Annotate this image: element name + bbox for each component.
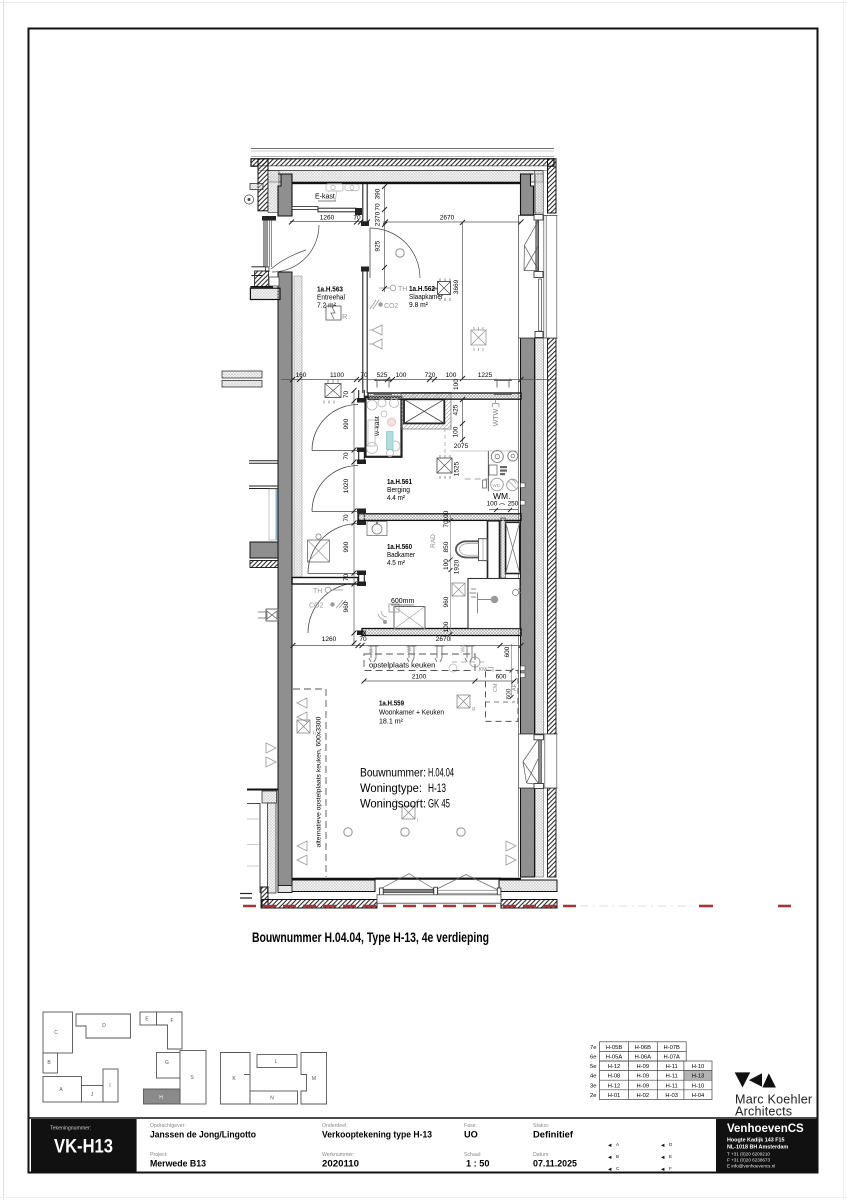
svg-text:M: M: [312, 1076, 316, 1082]
svg-text:R: R: [342, 312, 348, 321]
svg-text:H-06B: H-06B: [635, 1045, 652, 1051]
svg-text:H.04.04: H.04.04: [428, 766, 454, 780]
svg-text:425: 425: [453, 404, 460, 415]
svg-text:H-07A: H-07A: [663, 1055, 680, 1061]
svg-text:Fase:: Fase:: [464, 1123, 477, 1129]
svg-text:i: i: [417, 818, 418, 824]
svg-text:2670: 2670: [436, 636, 451, 643]
svg-text:F: F: [669, 1166, 672, 1171]
svg-text:Opdrachtgever:: Opdrachtgever:: [150, 1123, 186, 1129]
svg-text:E-kast: E-kast: [315, 194, 335, 201]
svg-text:w-kast: w-kast: [374, 416, 381, 437]
svg-text:H-10: H-10: [692, 1064, 705, 1070]
svg-text:100: 100: [396, 372, 407, 379]
svg-text:600mm: 600mm: [391, 598, 415, 605]
svg-text:VW: VW: [407, 647, 413, 655]
svg-text:g: g: [472, 706, 475, 712]
svg-text:H-05B: H-05B: [606, 1045, 623, 1051]
svg-text:Woonkamer + Keuken: Woonkamer + Keuken: [379, 708, 444, 717]
svg-text:3e: 3e: [590, 1083, 596, 1089]
svg-text:6e: 6e: [590, 1055, 596, 1061]
svg-text:Werknummer:: Werknummer:: [322, 1152, 354, 1158]
svg-text:GK 45: GK 45: [428, 797, 450, 811]
svg-text:70: 70: [375, 203, 382, 211]
svg-text:H-06A: H-06A: [635, 1055, 652, 1061]
svg-text:WTW: WTW: [493, 408, 500, 426]
svg-text:WA: WA: [461, 644, 467, 653]
svg-text:100: 100: [453, 426, 460, 437]
svg-text:◀: ◀: [661, 1167, 665, 1172]
svg-text:600: 600: [504, 646, 511, 657]
svg-text:925: 925: [375, 240, 382, 251]
svg-text:7.2 m²: 7.2 m²: [317, 301, 337, 310]
svg-text:CO2: CO2: [384, 303, 399, 310]
svg-text:1920: 1920: [454, 559, 461, 574]
svg-text:70: 70: [443, 520, 450, 528]
svg-text:◀: ◀: [661, 1143, 665, 1148]
svg-text:WD: WD: [493, 483, 501, 488]
svg-text:CO2: CO2: [309, 603, 324, 610]
svg-text:D: D: [669, 1142, 673, 1147]
svg-text:H-02: H-02: [637, 1093, 650, 1099]
svg-text:2670: 2670: [440, 215, 455, 222]
svg-text:70: 70: [353, 215, 361, 222]
svg-text:alternatieve opstelplaats keuk: alternatieve opstelplaats keuken, 600x33…: [316, 716, 323, 847]
svg-text:7e: 7e: [590, 1045, 596, 1051]
svg-text:2370: 2370: [375, 211, 382, 226]
svg-text:100: 100: [443, 621, 450, 632]
svg-text:KM: KM: [479, 667, 488, 673]
svg-text:3669: 3669: [453, 279, 460, 294]
svg-text:70: 70: [360, 372, 368, 379]
svg-text:H-13: H-13: [428, 781, 446, 795]
svg-text:H-13: H-13: [692, 1074, 705, 1080]
svg-text:AF: AF: [512, 683, 518, 691]
svg-text:1225: 1225: [478, 372, 493, 379]
svg-text:Schaal:: Schaal:: [464, 1152, 481, 1158]
svg-text:H-11: H-11: [666, 1083, 678, 1089]
svg-text:E: E: [669, 1154, 672, 1159]
svg-text:WM.: WM.: [493, 491, 510, 501]
svg-text:L: L: [275, 1059, 278, 1065]
svg-text:9.8 m²: 9.8 m²: [409, 300, 429, 309]
svg-text:70: 70: [343, 514, 350, 522]
svg-text:CM: CM: [493, 683, 499, 692]
svg-text:18.1 m²: 18.1 m²: [379, 717, 404, 726]
svg-text:H-07B: H-07B: [663, 1045, 680, 1051]
svg-text:C: C: [54, 1030, 58, 1036]
svg-text:VK-H13: VK-H13: [54, 1137, 113, 1158]
svg-text:H-09: H-09: [637, 1074, 650, 1080]
svg-text:1260: 1260: [320, 215, 335, 222]
svg-text:H-11: H-11: [666, 1074, 678, 1080]
svg-text:Datum:: Datum:: [533, 1152, 550, 1158]
svg-text:D: D: [102, 1023, 106, 1029]
svg-text:70: 70: [343, 452, 350, 460]
svg-text:160: 160: [296, 372, 307, 379]
svg-text:VenhoevenCS: VenhoevenCS: [727, 1123, 804, 1135]
svg-text:100: 100: [443, 510, 450, 521]
svg-text:Onderdeel:: Onderdeel:: [322, 1123, 348, 1129]
svg-text:G: G: [165, 1060, 169, 1066]
svg-text:100: 100: [487, 501, 498, 508]
svg-text:H-01: H-01: [608, 1093, 621, 1099]
svg-text:UO: UO: [464, 1130, 478, 1140]
svg-text:600: 600: [496, 674, 507, 681]
svg-text:◀: ◀: [608, 1143, 612, 1148]
svg-text:100: 100: [453, 379, 460, 390]
svg-text:100: 100: [446, 372, 457, 379]
svg-text:720: 720: [425, 372, 436, 379]
svg-text:I: I: [109, 1083, 110, 1089]
svg-text:07.11.2025: 07.11.2025: [533, 1159, 577, 1169]
svg-text:◀: ◀: [608, 1167, 612, 1172]
svg-text:Bouwnummer:: Bouwnummer:: [360, 766, 426, 780]
svg-text:Definitief: Definitief: [533, 1130, 574, 1140]
svg-text:Project:: Project:: [150, 1152, 168, 1158]
svg-text:Woningtype:: Woningtype:: [360, 781, 422, 795]
svg-text:Verkooptekening type H-13: Verkooptekening type H-13: [322, 1130, 432, 1140]
svg-text:C: C: [616, 1166, 620, 1171]
svg-text:Tekeningnummer:: Tekeningnummer:: [50, 1126, 91, 1132]
svg-text:1a.H.559: 1a.H.559: [379, 699, 404, 708]
svg-text:KK: KK: [369, 648, 375, 655]
svg-text:4e: 4e: [590, 1074, 596, 1080]
svg-text:1 : 50: 1 : 50: [466, 1159, 490, 1169]
svg-text:70: 70: [359, 636, 367, 643]
svg-text:70: 70: [343, 574, 350, 582]
svg-text:2020110: 2020110: [322, 1159, 359, 1169]
svg-text:◀: ◀: [608, 1155, 612, 1160]
svg-text:H-08: H-08: [608, 1074, 621, 1080]
svg-text:F: F: [170, 1018, 173, 1024]
svg-text:990: 990: [343, 541, 350, 552]
svg-text:990: 990: [343, 418, 350, 429]
svg-text:opstelplaats keuken: opstelplaats keuken: [369, 661, 435, 670]
svg-text:N: N: [270, 1096, 274, 1102]
svg-text:T +31 (0)20 6209210: T +31 (0)20 6209210: [727, 1152, 770, 1157]
svg-text:A: A: [616, 1142, 620, 1147]
svg-text:250: 250: [508, 501, 519, 508]
svg-text:RAD: RAD: [430, 534, 437, 548]
svg-text:Woningsoort:: Woningsoort:: [360, 797, 426, 811]
svg-text:H-12: H-12: [608, 1064, 621, 1070]
svg-text:Architects: Architects: [735, 1105, 792, 1119]
svg-text:TH: TH: [313, 588, 322, 595]
svg-text:H-03: H-03: [665, 1093, 678, 1099]
svg-text:70: 70: [343, 391, 350, 399]
svg-text:2e: 2e: [590, 1093, 596, 1099]
svg-text:960: 960: [343, 601, 350, 612]
svg-text:1020: 1020: [343, 478, 350, 493]
svg-text:H-05A: H-05A: [606, 1055, 623, 1061]
svg-text:100: 100: [443, 559, 450, 570]
svg-text:NL-1018 BH Amsterdam: NL-1018 BH Amsterdam: [727, 1145, 788, 1151]
svg-text:H-04: H-04: [692, 1093, 705, 1099]
svg-text:1525: 1525: [454, 461, 461, 476]
svg-text:Bouwnummer H.04.04, Type H-13,: Bouwnummer H.04.04, Type H-13, 4e verdie…: [252, 930, 489, 945]
svg-text:Janssen de Jong/Lingotto: Janssen de Jong/Lingotto: [150, 1130, 256, 1140]
svg-text:H-09: H-09: [637, 1064, 650, 1070]
svg-text:◀: ◀: [661, 1155, 665, 1160]
svg-text:4.4 m²: 4.4 m²: [387, 493, 405, 502]
svg-text:H: H: [159, 1095, 163, 1101]
svg-text:1100: 1100: [330, 372, 344, 379]
svg-text:F +31 (0)20 6238673: F +31 (0)20 6238673: [727, 1158, 770, 1163]
svg-text:TH: TH: [398, 286, 407, 293]
svg-text:850: 850: [443, 541, 450, 552]
svg-text:Status:: Status:: [533, 1123, 549, 1129]
svg-text:2075: 2075: [454, 443, 469, 450]
svg-text:H-10: H-10: [692, 1083, 705, 1089]
svg-text:Hoogte Kadijk 143 F15: Hoogte Kadijk 143 F15: [727, 1138, 785, 1144]
svg-text:390: 390: [375, 188, 382, 199]
svg-text:2100: 2100: [412, 674, 427, 681]
svg-text:525: 525: [377, 372, 388, 379]
svg-text:E info@venhoevencs.nl: E info@venhoevencs.nl: [727, 1164, 775, 1169]
svg-text:H-09: H-09: [637, 1083, 650, 1089]
svg-text:Merwede B13: Merwede B13: [150, 1159, 206, 1169]
svg-text:960: 960: [443, 596, 450, 607]
svg-text:5e: 5e: [590, 1064, 596, 1070]
svg-text:H-11: H-11: [666, 1064, 678, 1070]
svg-text:4.5 m²: 4.5 m²: [387, 558, 405, 567]
svg-text:1260: 1260: [322, 636, 337, 643]
svg-text:H-12: H-12: [608, 1083, 621, 1089]
svg-text:B: B: [616, 1154, 619, 1159]
